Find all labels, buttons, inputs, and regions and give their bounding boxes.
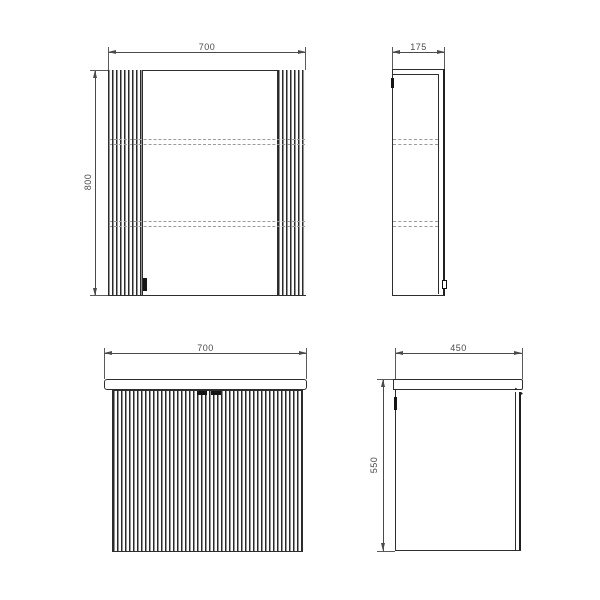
vanity-front-width-dimension-line <box>104 353 307 354</box>
arrowhead-up-icon <box>381 379 385 387</box>
hidden-shelf-line <box>109 139 305 140</box>
hidden-shelf-line <box>393 139 438 140</box>
extension-line <box>444 47 445 69</box>
extension-line <box>377 551 395 552</box>
extension-line <box>305 47 306 70</box>
hidden-shelf-line <box>109 226 305 227</box>
vanity-fluted-front <box>112 390 303 552</box>
fluted-side-panel-left <box>108 70 143 295</box>
mirror-cabinet-front-view <box>108 70 306 296</box>
mirror-door-edge-line <box>438 74 439 294</box>
vanity-countertop-front <box>104 379 307 390</box>
extension-line <box>90 70 108 71</box>
vanity-door-handle-right <box>211 391 221 395</box>
arrowhead-left-icon <box>108 50 116 54</box>
extension-line <box>392 47 393 69</box>
arrowhead-left-icon <box>104 351 112 355</box>
vanity-countertop-side <box>393 379 523 390</box>
vanity-front-width-dimension-label: 700 <box>104 343 307 353</box>
extension-line <box>108 47 109 70</box>
fluted-side-panel-right <box>277 70 306 295</box>
hidden-shelf-line <box>393 221 438 222</box>
arrowhead-left-icon <box>392 50 400 54</box>
arrowhead-up-icon <box>93 70 97 78</box>
mirror-cabinet-side-view <box>392 69 445 296</box>
wall-mount-clip <box>391 78 394 88</box>
mirror-front-width-dimension-line <box>108 52 306 53</box>
extension-line <box>90 295 108 296</box>
top-panel-line <box>393 74 438 75</box>
mirror-front-height-dimension-label: 800 <box>83 172 93 192</box>
extension-line <box>306 348 307 379</box>
hidden-shelf-line <box>393 144 438 145</box>
wall-mount-bracket <box>394 397 397 410</box>
vanity-side-depth-dimension-label: 450 <box>395 343 522 353</box>
vanity-side-depth-dimension-line <box>395 353 522 354</box>
vanity-side-height-dimension-line <box>383 379 384 551</box>
vanity-side-view-body <box>395 390 521 551</box>
arrowhead-left-icon <box>395 351 403 355</box>
vanity-fluted-door-edge <box>515 392 522 550</box>
extension-line <box>104 348 105 379</box>
extension-line <box>522 348 523 379</box>
technical-drawing-canvas: 700 800 175 700 <box>0 0 600 600</box>
vanity-side-height-dimension-label: 550 <box>369 455 379 475</box>
extension-line <box>395 348 396 379</box>
hidden-shelf-line <box>109 221 305 222</box>
mirror-front-height-dimension-line <box>95 70 96 296</box>
hidden-shelf-line <box>109 144 305 145</box>
mirror-front-width-dimension-label: 700 <box>108 42 306 52</box>
extension-line <box>377 379 393 380</box>
mirror-door-handle-side <box>442 280 447 289</box>
vanity-door-handle-left <box>197 391 207 395</box>
mirror-door-handle <box>143 278 147 291</box>
hidden-shelf-line <box>393 226 438 227</box>
